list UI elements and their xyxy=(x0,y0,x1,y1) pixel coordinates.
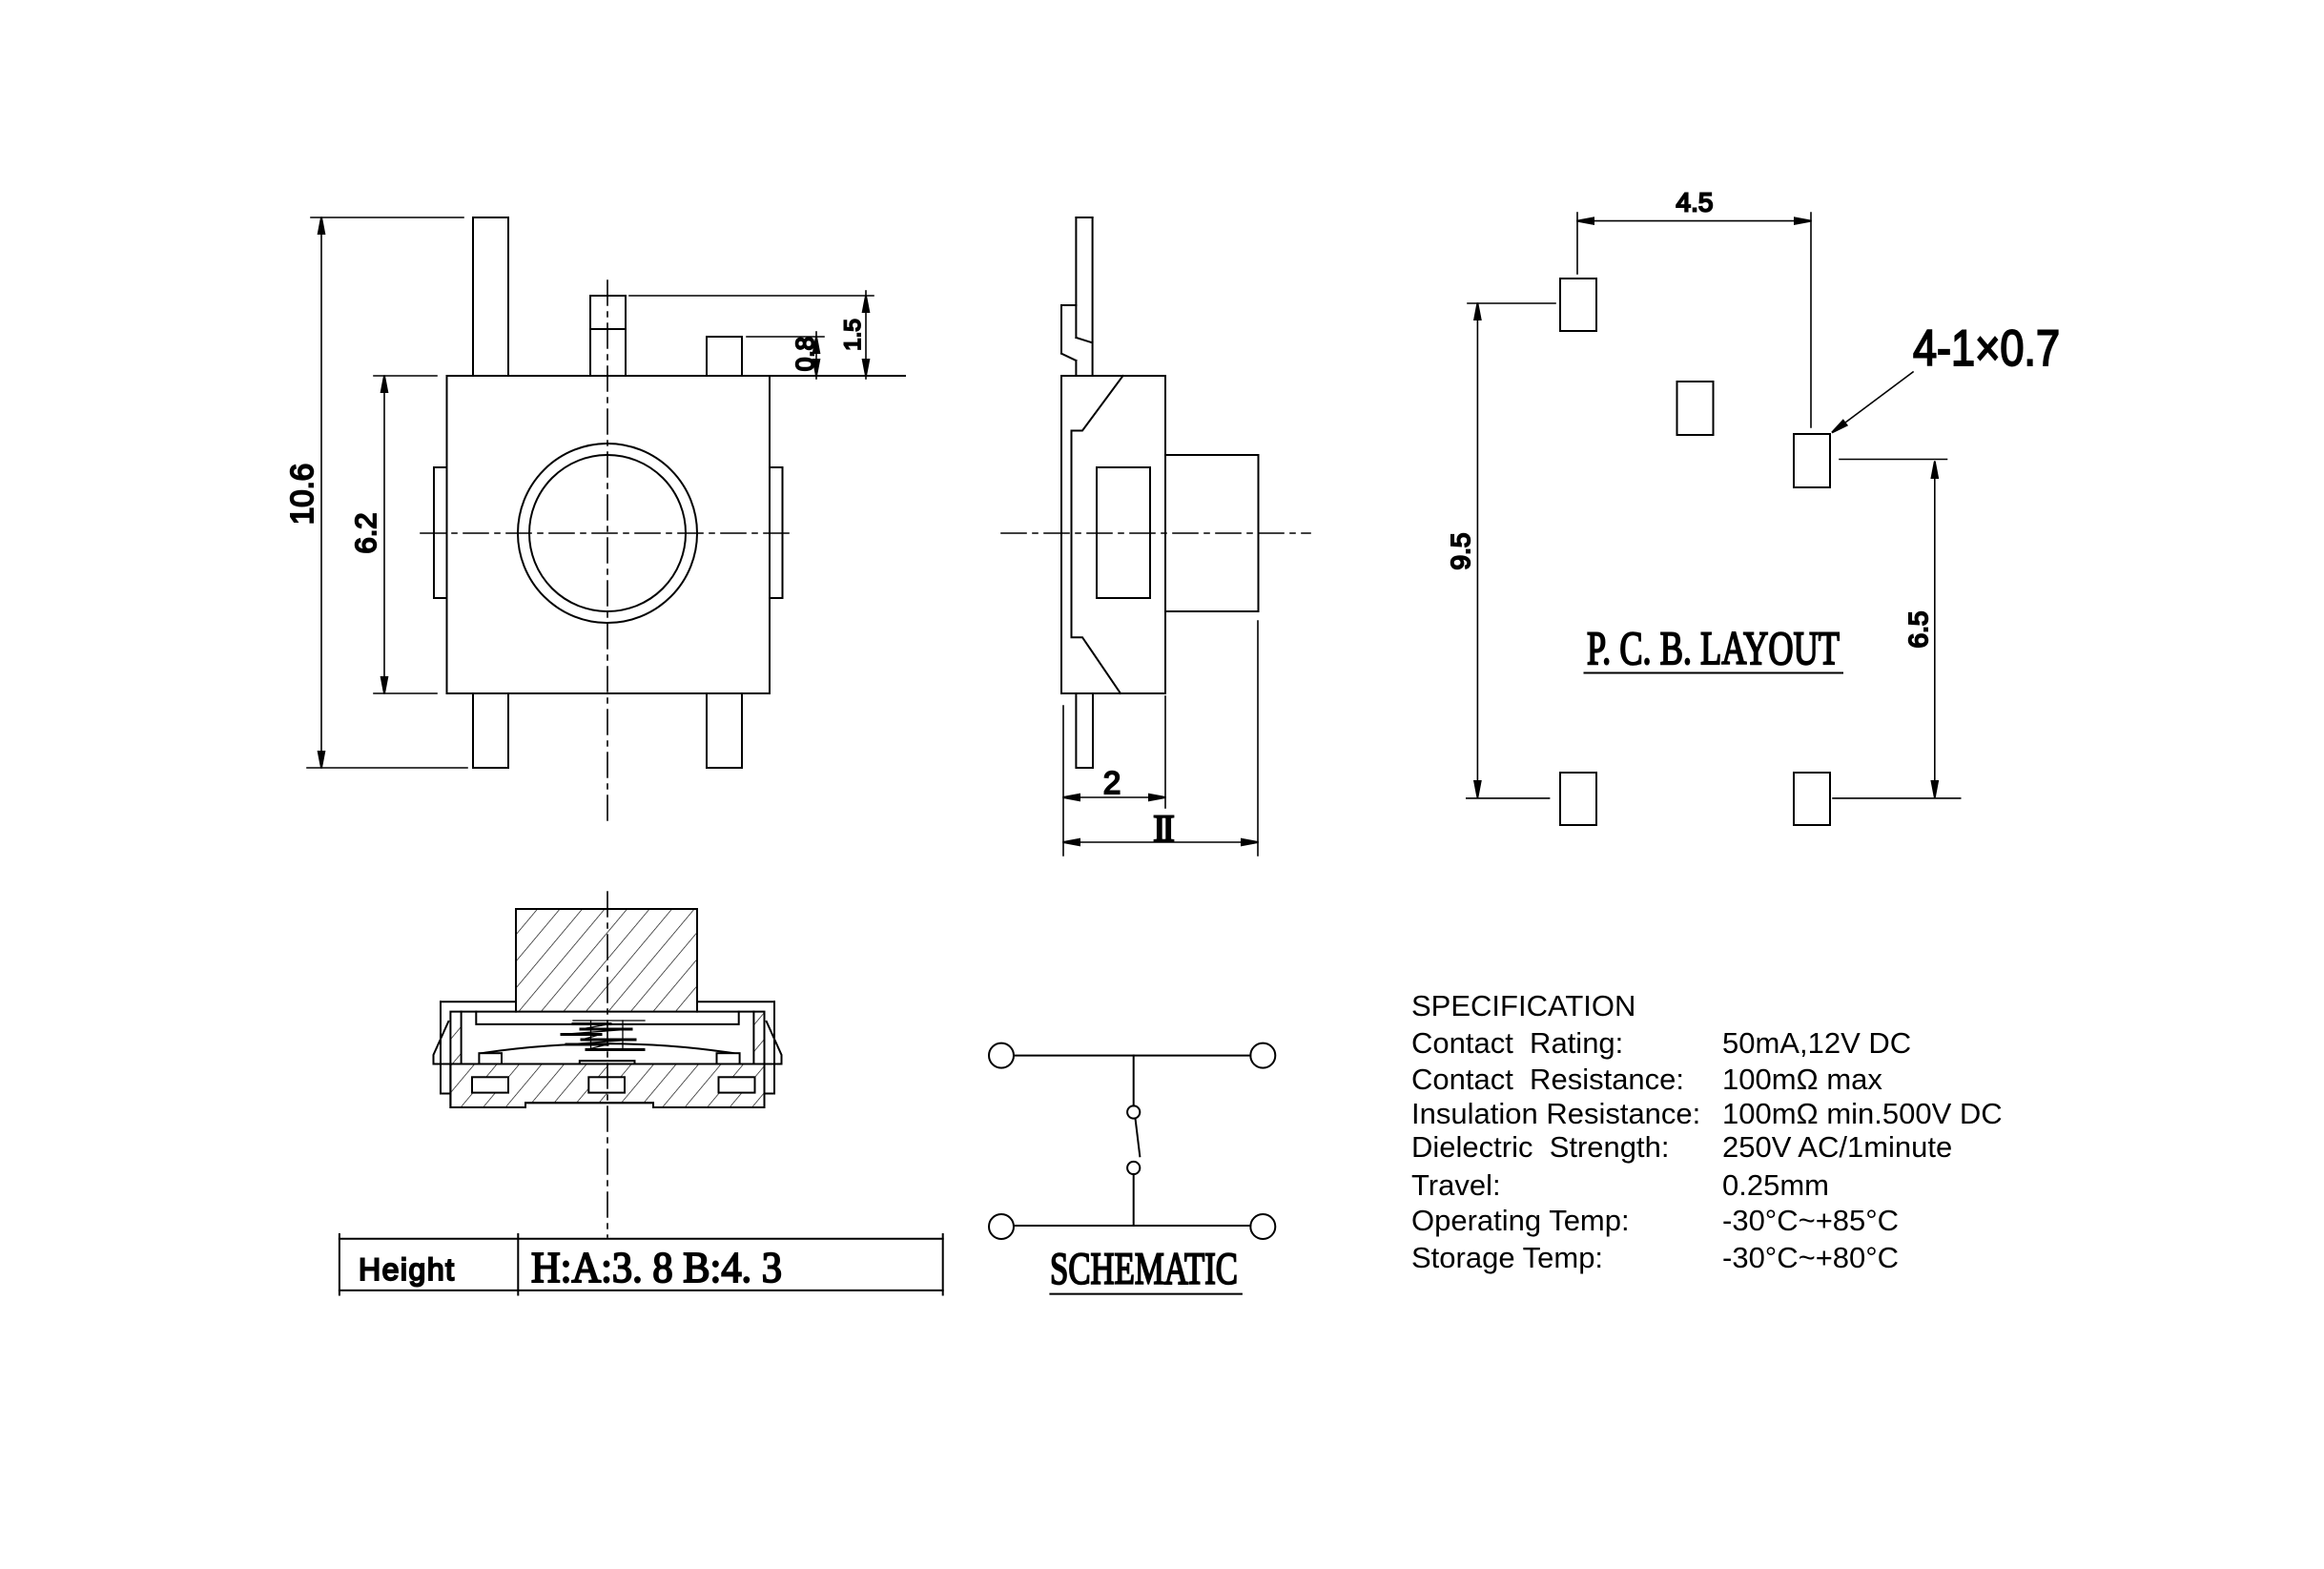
svg-text:9.5: 9.5 xyxy=(1446,533,1475,570)
svg-text:Operating Temp:: Operating Temp: xyxy=(1411,1204,1630,1237)
svg-text:P. C. B. LAYOUT: P. C. B. LAYOUT xyxy=(1587,621,1840,674)
svg-text:-30°C~+85°C: -30°C~+85°C xyxy=(1722,1204,1899,1237)
svg-text:100mΩ min.500V DC: 100mΩ min.500V DC xyxy=(1722,1097,2003,1130)
svg-text:6.5: 6.5 xyxy=(1903,611,1933,649)
svg-text:Contact Resistance:: Contact Resistance: xyxy=(1411,1063,1684,1096)
svg-text:4-1×0.7: 4-1×0.7 xyxy=(1913,320,2060,377)
svg-text:SPECIFICATION: SPECIFICATION xyxy=(1411,989,1635,1022)
svg-text:2: 2 xyxy=(1103,765,1121,800)
svg-text:10.6: 10.6 xyxy=(284,464,319,525)
svg-text:Insulation Resistance:: Insulation Resistance: xyxy=(1411,1097,1700,1130)
svg-text:SCHEMATIC: SCHEMATIC xyxy=(1050,1244,1238,1294)
svg-text:Dielectric Strength:: Dielectric Strength: xyxy=(1411,1130,1670,1164)
svg-text:1.5: 1.5 xyxy=(840,319,866,350)
svg-text:-30°C~+80°C: -30°C~+80°C xyxy=(1722,1241,1899,1274)
svg-text:Travel:: Travel: xyxy=(1411,1168,1501,1202)
svg-text:4.5: 4.5 xyxy=(1676,188,1714,217)
svg-text:0.8: 0.8 xyxy=(791,337,819,371)
svg-text:100mΩ max: 100mΩ max xyxy=(1722,1063,1882,1096)
svg-text:Contact Rating:: Contact Rating: xyxy=(1411,1026,1623,1060)
svg-text:50mA,12V DC: 50mA,12V DC xyxy=(1722,1026,1911,1060)
svg-text:250V AC/1minute: 250V AC/1minute xyxy=(1722,1130,1952,1164)
svg-text:II: II xyxy=(1153,807,1173,850)
svg-text:0.25mm: 0.25mm xyxy=(1722,1168,1829,1202)
svg-text:Storage Temp:: Storage Temp: xyxy=(1411,1241,1603,1274)
svg-text:6.2: 6.2 xyxy=(349,512,382,553)
svg-text:Height: Height xyxy=(359,1252,456,1287)
svg-text:H:A:3. 8 B:4. 3: H:A:3. 8 B:4. 3 xyxy=(531,1243,782,1291)
